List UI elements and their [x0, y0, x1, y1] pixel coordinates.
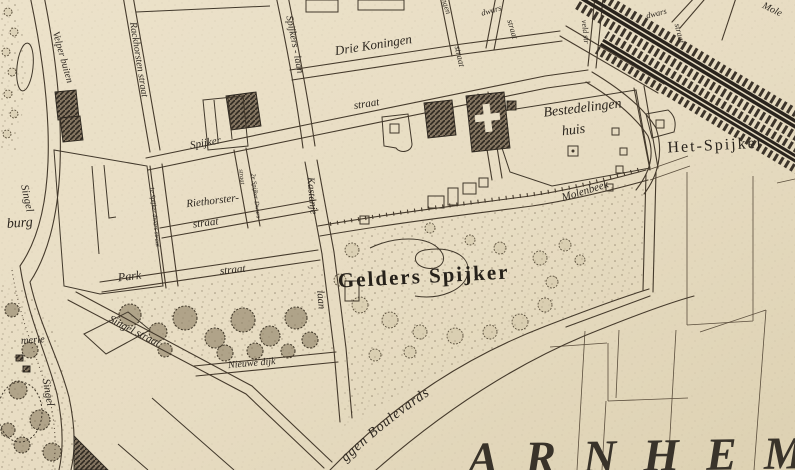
map-label: burg [6, 215, 33, 232]
map-label: ARNHEM [464, 427, 795, 470]
building-dark [424, 100, 456, 138]
building-dark [23, 366, 30, 372]
building-dark [16, 355, 23, 361]
map-label: huis [561, 122, 587, 140]
historical-map-screenshot: ggen Boulevards Velper buitenRackhorsten… [0, 0, 795, 470]
map-canvas: ggen Boulevards Velper buitenRackhorsten… [0, 0, 795, 470]
building-dark [507, 101, 516, 110]
map-label: laan [314, 290, 327, 310]
map-label: merie [21, 334, 46, 347]
building-dark [55, 90, 79, 120]
building-dark [60, 116, 83, 142]
